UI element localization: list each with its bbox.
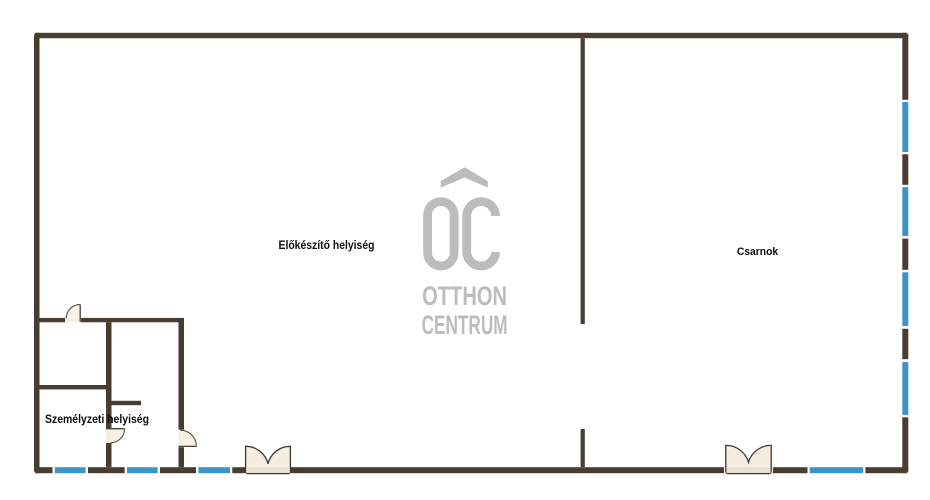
svg-text:OTTHON: OTTHON [422, 281, 507, 311]
svg-text:Személyzeti helyiség: Személyzeti helyiség [45, 412, 149, 426]
svg-text:CENTRUM: CENTRUM [422, 310, 508, 340]
svg-text:Előkészítő helyiség: Előkészítő helyiség [279, 238, 375, 252]
svg-text:Csarnok: Csarnok [737, 246, 779, 258]
